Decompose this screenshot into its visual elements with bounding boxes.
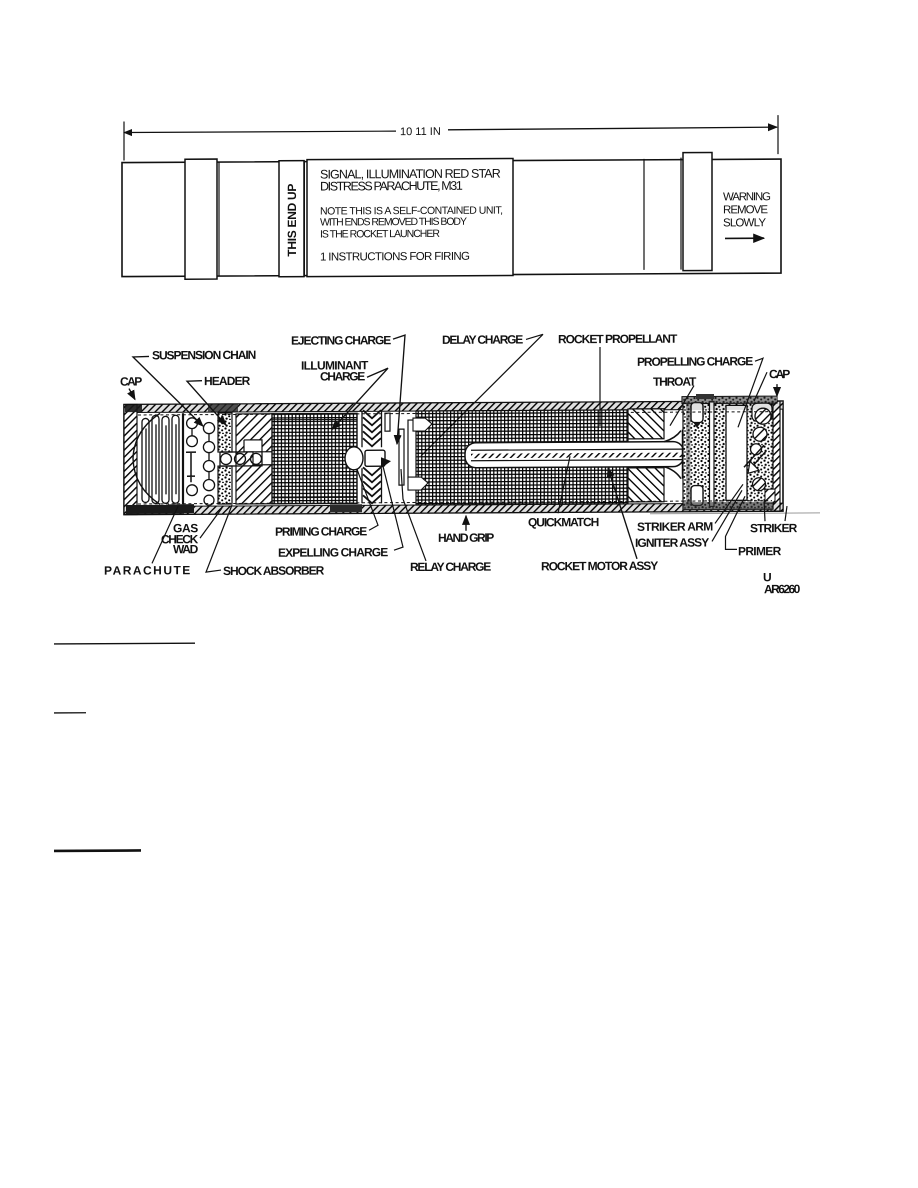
svg-text:EJECTING CHARGE: EJECTING CHARGE xyxy=(291,333,391,348)
svg-text:ROCKET PROPELLANT: ROCKET PROPELLANT xyxy=(558,332,678,347)
svg-text:SUSPENSION CHAIN: SUSPENSION CHAIN xyxy=(152,348,256,363)
svg-text:IS THE ROCKET LAUNCHER: IS THE ROCKET LAUNCHER xyxy=(320,228,440,241)
svg-text:CHARGE: CHARGE xyxy=(320,369,365,383)
svg-text:10 11 IN: 10 11 IN xyxy=(400,126,441,138)
svg-text:IGNITER ASSY: IGNITER ASSY xyxy=(635,535,709,549)
svg-text:WAD: WAD xyxy=(173,542,199,556)
svg-text:EXPELLING CHARGE: EXPELLING CHARGE xyxy=(278,545,388,560)
svg-text:HEADER: HEADER xyxy=(204,374,251,388)
svg-text:STRIKER ARM: STRIKER ARM xyxy=(637,519,713,533)
svg-text:THIS END UP: THIS END UP xyxy=(285,184,299,257)
svg-text:1 INSTRUCTIONS FOR FIRING: 1 INSTRUCTIONS FOR FIRING xyxy=(320,251,470,264)
svg-text:AR6260: AR6260 xyxy=(764,582,801,596)
svg-text:PRIMING CHARGE: PRIMING CHARGE xyxy=(275,524,367,538)
svg-text:PRIMER: PRIMER xyxy=(738,544,782,558)
svg-text:REMOVE: REMOVE xyxy=(723,204,768,216)
svg-text:STRIKER: STRIKER xyxy=(750,521,798,535)
svg-text:CAP: CAP xyxy=(120,374,142,388)
svg-text:RELAY CHARGE: RELAY CHARGE xyxy=(410,560,491,574)
svg-text:WARNING: WARNING xyxy=(723,191,771,203)
svg-text:DISTRESS PARACHUTE, M31: DISTRESS PARACHUTE, M31 xyxy=(320,179,463,194)
svg-text:THROAT: THROAT xyxy=(653,375,697,389)
svg-text:PROPELLING CHARGE: PROPELLING CHARGE xyxy=(637,354,753,369)
svg-text:WITH ENDS REMOVED THIS BODY: WITH ENDS REMOVED THIS BODY xyxy=(320,216,467,229)
svg-text:SLOWLY: SLOWLY xyxy=(723,217,766,229)
svg-text:HAND GRIP: HAND GRIP xyxy=(438,531,494,545)
svg-text:SHOCK ABSORBER: SHOCK ABSORBER xyxy=(223,564,325,579)
svg-text:QUICKMATCH: QUICKMATCH xyxy=(528,515,599,529)
svg-text:PARACHUTE: PARACHUTE xyxy=(104,563,190,577)
svg-text:ROCKET MOTOR ASSY: ROCKET MOTOR ASSY xyxy=(541,559,658,574)
svg-text:DELAY CHARGE: DELAY CHARGE xyxy=(442,332,523,346)
svg-text:CAP: CAP xyxy=(769,367,790,381)
